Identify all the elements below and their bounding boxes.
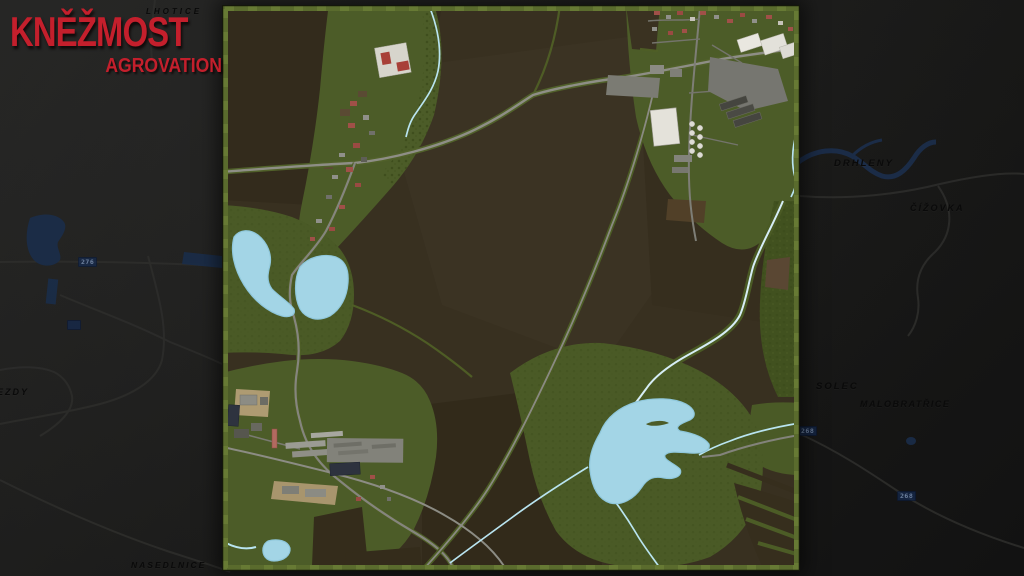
logo-title: KNĚŽMOST bbox=[10, 8, 177, 56]
bg-place-label: MALOBRATŘICE bbox=[860, 399, 950, 409]
bg-place-label: SOLEC bbox=[816, 381, 859, 392]
route-badge: 268 bbox=[798, 426, 817, 436]
bg-place-label: EZDY bbox=[0, 387, 29, 397]
bg-place-label: ČÍŽOVKA bbox=[910, 203, 965, 213]
route-badge bbox=[67, 320, 81, 330]
logo-subtitle: AGROVATION bbox=[35, 55, 222, 78]
bg-place-label: DRHLENY bbox=[834, 158, 894, 169]
route-badge: 276 bbox=[78, 257, 97, 267]
map-preview-svg bbox=[222, 5, 800, 571]
bg-place-label: NASEDLNICE bbox=[131, 560, 206, 570]
map-logo: KNĚŽMOST AGROVATION bbox=[10, 8, 224, 56]
map-preview-image bbox=[222, 5, 800, 571]
screenshot-stage: LHOTICE DRHLENY ČÍŽOVKA SOLEC MALOBRATŘI… bbox=[0, 0, 1024, 576]
route-badge: 268 bbox=[897, 491, 916, 501]
